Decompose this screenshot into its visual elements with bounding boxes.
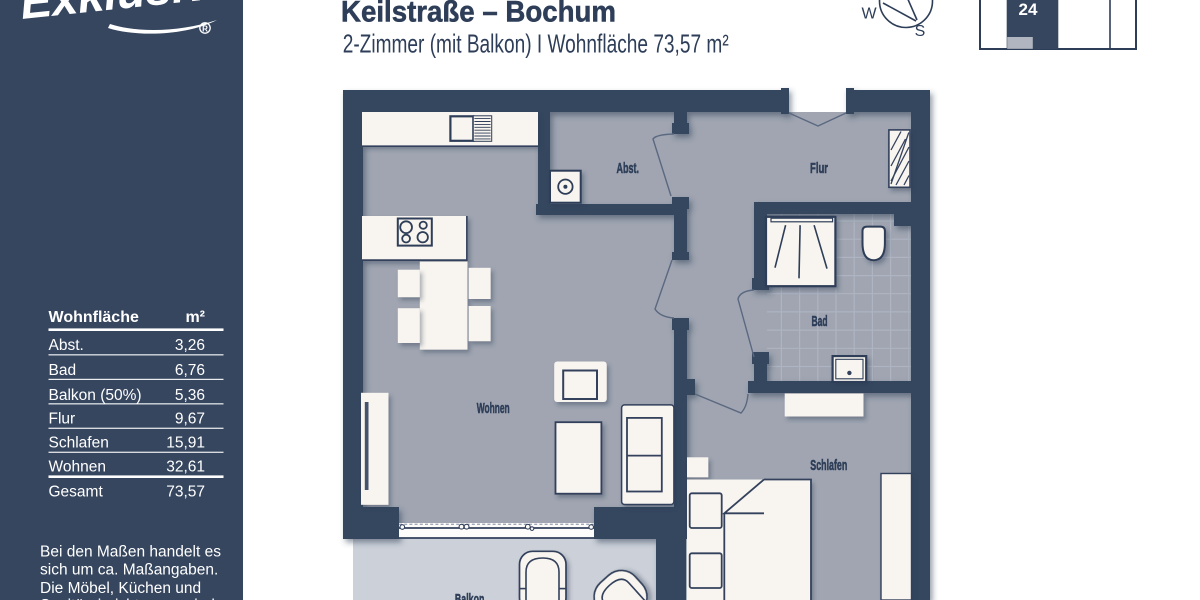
svg-text:Schlafen: Schlafen	[49, 435, 109, 452]
svg-text:W: W	[861, 6, 877, 23]
svg-text:32,61: 32,61	[166, 459, 205, 476]
svg-text:Bei den Maßen handelt es: Bei den Maßen handelt es	[40, 544, 221, 561]
svg-text:m²: m²	[185, 309, 205, 326]
svg-text:73,57: 73,57	[166, 484, 205, 501]
svg-text:R: R	[202, 25, 208, 34]
svg-text:Die Möbel, Küchen und: Die Möbel, Küchen und	[40, 580, 201, 597]
svg-text:sich um ca. Maßangaben.: sich um ca. Maßangaben.	[40, 562, 218, 579]
svg-text:6,76: 6,76	[175, 362, 205, 379]
svg-text:Keilstraße – Bochum: Keilstraße – Bochum	[341, 0, 616, 29]
svg-text:Abst.: Abst.	[617, 160, 640, 177]
svg-text:Schlafen: Schlafen	[810, 457, 847, 474]
svg-text:Flur: Flur	[810, 160, 828, 177]
svg-text:2-Zimmer (mit Balkon) I Wohn: 2-Zimmer (mit Balkon) I Wohnfläche 73,57…	[343, 28, 729, 58]
svg-text:Wohnfläche: Wohnfläche	[49, 309, 139, 326]
svg-text:Wohnen: Wohnen	[477, 400, 510, 417]
svg-text:9,67: 9,67	[175, 411, 205, 428]
svg-text:S: S	[915, 23, 926, 40]
svg-text:Balkon (50%): Balkon (50%)	[49, 387, 142, 404]
svg-text:Gesamt: Gesamt	[49, 484, 104, 501]
svg-text:Abst.: Abst.	[49, 337, 84, 354]
svg-text:Wohnen: Wohnen	[49, 459, 106, 476]
svg-text:Bad: Bad	[812, 313, 828, 330]
svg-text:Bad: Bad	[49, 362, 77, 379]
svg-text:15,91: 15,91	[166, 435, 205, 452]
svg-text:Flur: Flur	[49, 411, 76, 428]
svg-text:5,36: 5,36	[175, 387, 205, 404]
svg-text:24: 24	[1019, 0, 1038, 19]
svg-text:3,26: 3,26	[175, 337, 205, 354]
svg-text:Balkon: Balkon	[455, 591, 485, 600]
